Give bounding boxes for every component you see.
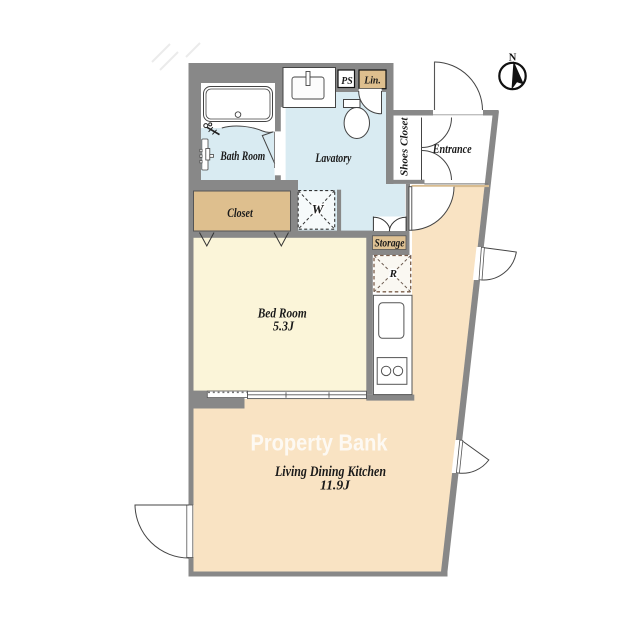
svg-text:N: N [509, 53, 517, 64]
svg-text:Shoes Closet: Shoes Closet [399, 116, 410, 176]
svg-text:Closet: Closet [227, 206, 253, 220]
svg-text:Property Bank: Property Bank [251, 430, 389, 456]
svg-text:Bath Room: Bath Room [220, 149, 266, 163]
svg-text:Lin.: Lin. [363, 76, 380, 87]
svg-text:Living Dining Kitchen: Living Dining Kitchen [274, 464, 386, 480]
svg-text:Entrance: Entrance [432, 142, 472, 156]
svg-text:5.3J: 5.3J [273, 319, 295, 334]
svg-text:PS: PS [341, 75, 353, 87]
svg-text:Lavatory: Lavatory [315, 150, 352, 165]
svg-text:Storage: Storage [375, 236, 406, 250]
svg-text:W: W [312, 202, 325, 217]
svg-text:11.9J: 11.9J [320, 479, 351, 494]
svg-text:R: R [389, 268, 397, 280]
